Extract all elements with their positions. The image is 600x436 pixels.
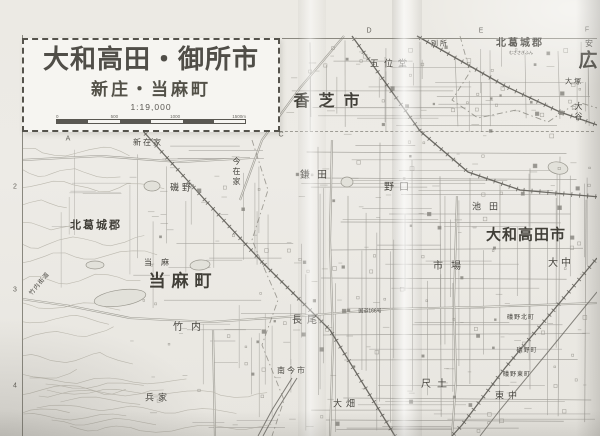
- grid-reference-mark: A: [66, 136, 71, 143]
- map-title-box: 大和高田・御所市 新庄・当麻町 1:19,000 050010001500m: [22, 38, 280, 132]
- scale-bar: 050010001500m: [56, 115, 246, 124]
- scanned-map-photo: 香芝市北葛城郡むささぎふん広安五位堂別所大塚大谷北葛城郡当麻当麻町大和高田市新在…: [0, 0, 600, 436]
- map-place-label: 野口: [384, 183, 414, 193]
- grid-reference-mark: 4: [13, 383, 17, 390]
- scale-bar-tick-label: 1500m: [232, 115, 246, 120]
- map-place-label: 広: [578, 52, 597, 71]
- map-place-label: 今在家: [232, 157, 240, 187]
- grid-reference-mark: D: [366, 28, 371, 35]
- map-subtitle: 新庄・当麻町: [91, 75, 211, 100]
- map-place-label: 市場: [433, 262, 469, 272]
- grid-reference-mark: 3: [13, 287, 17, 294]
- map-place-label: 別所: [431, 41, 449, 48]
- map-place-label: 北葛城郡: [70, 221, 122, 232]
- scale-bar-tick-label: 1000: [170, 115, 180, 120]
- map-neatline-top: [282, 38, 597, 39]
- map-place-label: 大谷: [574, 102, 582, 122]
- map-place-label: 鎌田: [300, 171, 334, 181]
- map-place-label: 兵家: [145, 394, 171, 403]
- map-place-label: 尺土: [421, 380, 453, 390]
- scale-bar-tick-label: 500: [111, 115, 119, 120]
- map-place-label: 大和高田市: [486, 228, 566, 243]
- map-place-label: 国道166号: [358, 310, 381, 315]
- map-place-label: 当麻町: [149, 273, 218, 290]
- map-place-label: 香芝市: [293, 94, 368, 110]
- map-place-label: 北葛城郡: [496, 39, 544, 49]
- map-place-label: 大畑: [333, 400, 359, 409]
- map-place-label: 安: [585, 40, 593, 48]
- grid-reference-mark: E: [479, 28, 484, 35]
- map-place-label: 南今市: [277, 367, 307, 375]
- map-place-label: 池田: [472, 203, 506, 212]
- grid-reference-mark: C: [278, 132, 283, 139]
- grid-reference-mark: 2: [13, 184, 17, 191]
- map-place-label: 竹内: [173, 323, 209, 333]
- map-place-label: 礒野北町: [507, 315, 535, 321]
- grid-reference-mark: F: [585, 27, 589, 34]
- map-place-label: 新在家: [133, 139, 163, 147]
- scale-bar-rule: [56, 119, 246, 124]
- scale-bar-tick-label: 0: [56, 115, 59, 120]
- map-place-label: 礒野町: [516, 348, 537, 354]
- map-place-label: 長尾: [292, 316, 322, 326]
- map-place-label: 当麻: [144, 259, 178, 267]
- map-title: 大和高田・御所市: [43, 46, 259, 73]
- map-place-label: 大塚: [565, 79, 583, 86]
- map-scale-text: 1:19,000: [130, 102, 171, 112]
- map-place-label: 五位堂: [370, 60, 412, 69]
- map-place-label: むささぎふん: [509, 51, 533, 55]
- map-place-label: 大中: [548, 259, 574, 269]
- map-place-label: 礒野東町: [503, 372, 531, 378]
- map-place-label: 東中: [495, 392, 521, 401]
- map-place-label: 磯野: [170, 184, 194, 193]
